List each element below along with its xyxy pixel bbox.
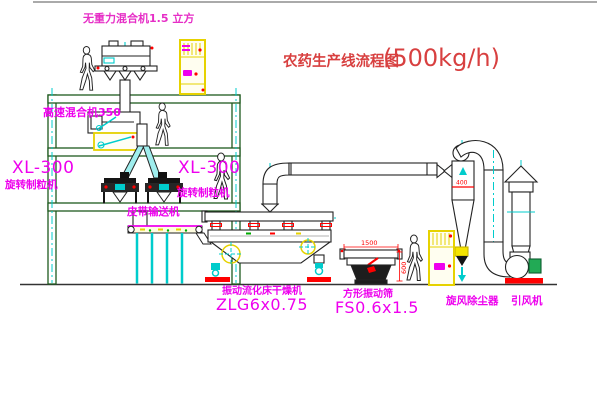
- elevator-grid-marking: [182, 45, 190, 47]
- worker-mid-floor: [156, 103, 170, 145]
- page-title-capacity: (500kg/h): [383, 46, 500, 70]
- cyclone-label: 旋风除尘器: [446, 296, 499, 307]
- gravity-mixer-label: 无重力混合机1.5 立方: [83, 13, 194, 24]
- belt-conveyor-label: 皮带输送机: [127, 207, 180, 218]
- granulator-right-name-label: 旋转制粒机: [177, 188, 230, 199]
- square-vibrating-sieve: 1500 600: [340, 239, 408, 284]
- sieve-length-dimension: 1500: [361, 239, 378, 247]
- dryer-discharge-right: [307, 255, 331, 282]
- granulator-right-model-label: XL-300: [178, 160, 240, 177]
- dryer-model-label: ZLG6x0.75: [216, 297, 308, 313]
- fan-motor: [529, 259, 541, 273]
- worker-on-roof: [80, 47, 95, 91]
- granulator-left-name-label: 旋转制粒机: [5, 180, 58, 191]
- page-title: 农药生产线流程图: [283, 55, 399, 70]
- sieve-height-dimension: 600: [400, 262, 408, 274]
- high-speed-mixer-label: 高速混合机350: [43, 107, 121, 118]
- elevator-grid-marking: [182, 49, 190, 51]
- fan-base: [505, 278, 543, 284]
- bucket-elevator-top: [180, 40, 205, 94]
- granulator-left-model-label: XL-300: [12, 160, 74, 177]
- cyclone-diameter-dimension: 400: [456, 180, 468, 187]
- belt-conveyor: [128, 226, 211, 284]
- dryer-discharge-left: [205, 263, 230, 282]
- fan-label: 引风机: [511, 296, 543, 307]
- worker-ground: [407, 235, 422, 281]
- dust-collector-box: [429, 231, 454, 285]
- induced-draft-fan: [505, 252, 543, 284]
- granulator-left: [101, 172, 139, 204]
- elevator-label-marking: [183, 70, 192, 76]
- dust-collector-marking: [434, 263, 445, 270]
- dryer-hood-ports: [211, 221, 332, 230]
- sieve-model-label: FS0.6x1.5: [335, 300, 419, 316]
- drawing-canvas: 1500 600 400: [0, 0, 600, 403]
